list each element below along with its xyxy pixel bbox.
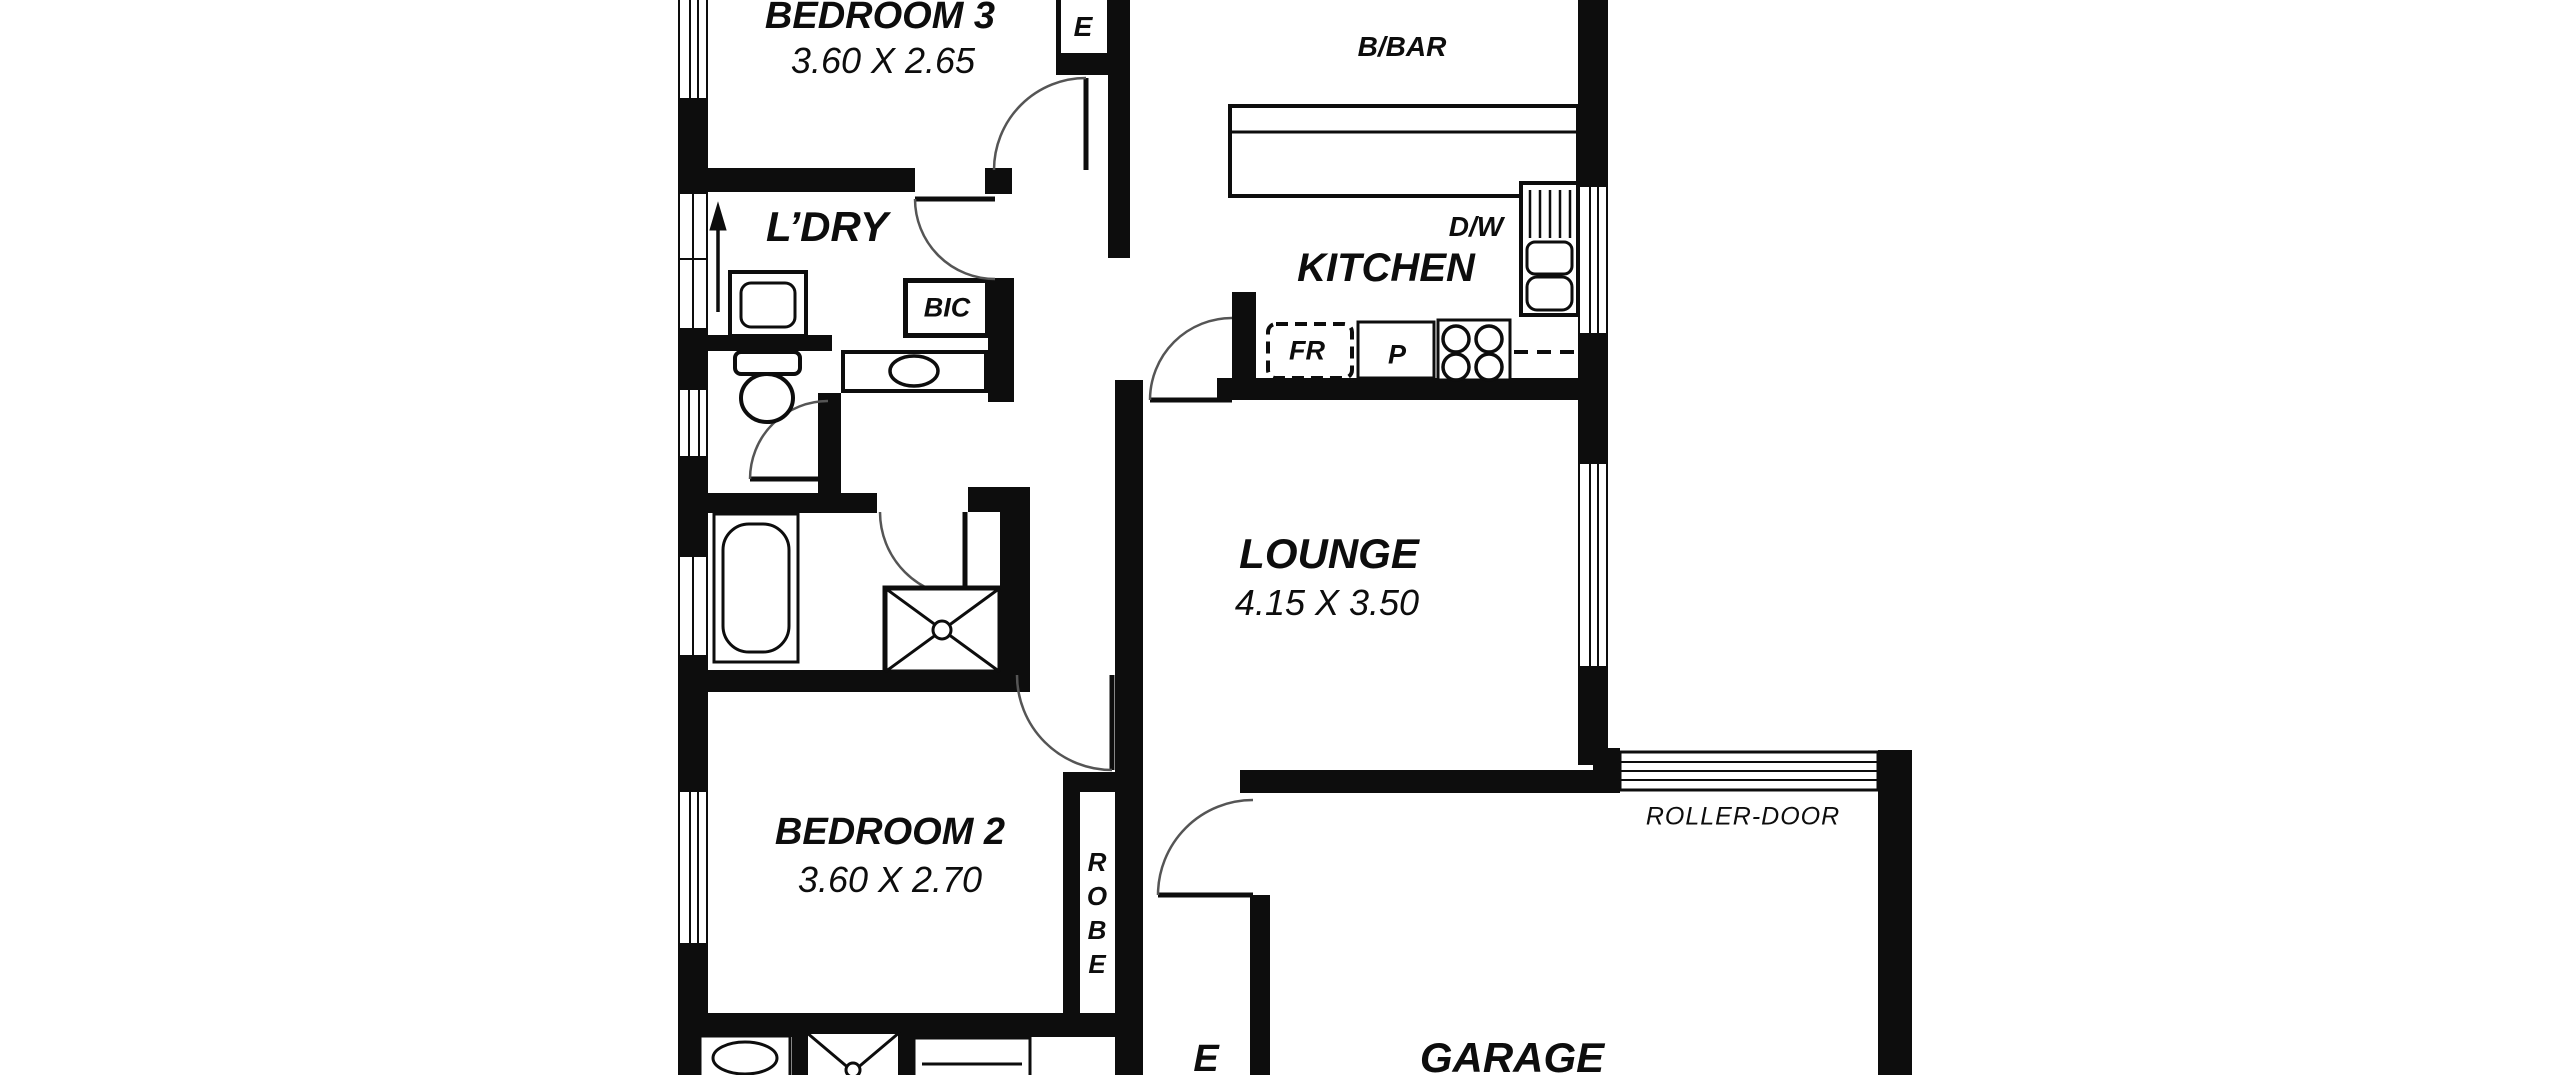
robe-label: ROBE: [1084, 847, 1110, 983]
ensuite-shower-icon: [806, 1032, 900, 1075]
bedroom2-label: BEDROOM 2: [775, 813, 1005, 851]
roller-door-label: ROLLER-DOOR: [1646, 805, 1840, 830]
ensuite-bath-icon: [914, 1038, 1030, 1075]
lounge-dims: 4.15 X 3.50: [1235, 585, 1419, 621]
breakfast-bar-label: B/BAR: [1358, 33, 1447, 61]
door-laundry: [915, 199, 995, 279]
bedroom3-label: BEDROOM 3: [765, 0, 995, 35]
basin-icon: [890, 356, 938, 386]
laundry-label: L’DRY: [766, 206, 888, 248]
bedroom3-dims: 3.60 X 2.65: [791, 43, 975, 79]
lounge-label: LOUNGE: [1239, 533, 1419, 575]
door-entry: [1158, 800, 1253, 895]
laundry-trough-icon: [730, 272, 806, 336]
pantry-label: P: [1388, 342, 1406, 369]
cooktop-icon: [1438, 320, 1510, 380]
door-bedroom2-hall: [1017, 675, 1112, 770]
door-bedroom3: [994, 78, 1086, 170]
door-lounge: [1150, 318, 1232, 400]
entry-partial-label: E: [1193, 1040, 1218, 1075]
arrow-icon: [710, 203, 726, 312]
sink-icon: [1521, 183, 1578, 315]
shower-icon: [885, 588, 1000, 672]
bedroom2-dims: 3.60 X 2.70: [798, 862, 982, 898]
fridge-label: FR: [1289, 338, 1325, 365]
garage-label: GARAGE: [1420, 1037, 1604, 1075]
door-bathroom: [880, 512, 965, 597]
bic-label: BIC: [924, 295, 971, 322]
dishwasher-label: D/W: [1449, 213, 1503, 241]
roller-door-icon: [1620, 752, 1878, 790]
ensuite-basin-icon: [700, 1036, 790, 1075]
bathtub-icon: [714, 514, 798, 662]
kitchen-label: KITCHEN: [1297, 248, 1475, 288]
toilet-icon: [735, 352, 800, 422]
robe-bedroom3-partial-label: E: [1074, 13, 1093, 41]
floor-plan: BEDROOM 3 3.60 X 2.65 L’DRY BIC B/BAR D/…: [0, 0, 2560, 1075]
